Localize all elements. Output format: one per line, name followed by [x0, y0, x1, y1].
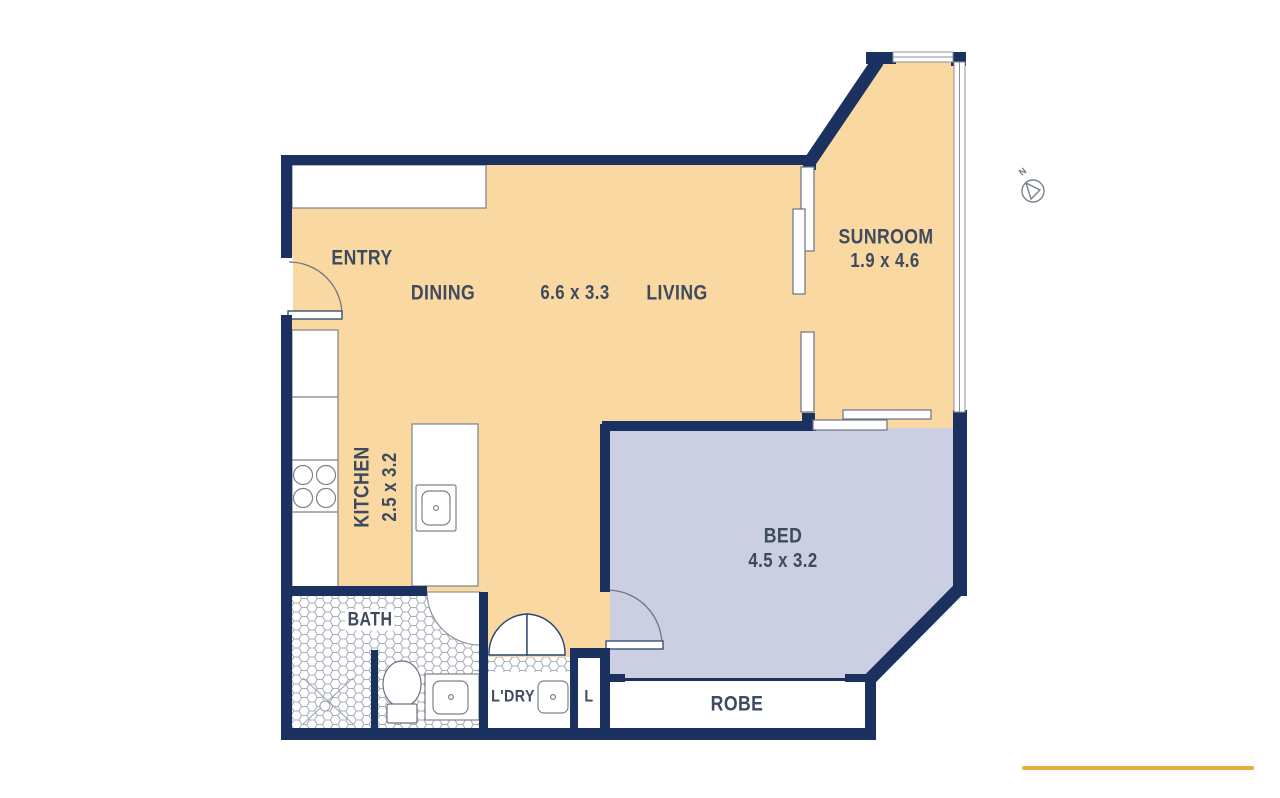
room-dims-sunroom: 1.9 x 4.6 — [850, 251, 919, 271]
room-dims-dining-living: 6.6 x 3.3 — [540, 283, 609, 303]
room-label-laundry: L'DRY — [491, 688, 535, 705]
floorplan-page: ENTRY DINING 6.6 x 3.3 LIVING SUNROOM 1.… — [0, 0, 1280, 798]
kitchen-bench — [292, 330, 338, 588]
room-label-kitchen: KITCHEN — [352, 446, 373, 527]
room-dims-kitchen: 2.5 x 3.2 — [380, 452, 400, 521]
compass-icon — [1022, 180, 1044, 202]
kitchen-sink-icon — [416, 485, 456, 531]
room-label-bed: BED — [764, 526, 803, 547]
room-label-entry: ENTRY — [331, 248, 392, 269]
room-label-robe: ROBE — [711, 694, 764, 715]
laundry-sink-icon — [538, 681, 568, 713]
room-label-bath: BATH — [345, 610, 395, 631]
floorplan-drawing — [0, 0, 1280, 798]
bath-vanity-icon — [425, 674, 479, 720]
room-dims-bed: 4.5 x 3.2 — [748, 551, 817, 571]
toilet-icon — [383, 661, 421, 723]
room-label-sunroom: SUNROOM — [838, 227, 933, 248]
room-label-living: LIVING — [646, 283, 707, 304]
room-label-dining: DINING — [411, 283, 475, 304]
accent-underline — [1022, 766, 1254, 770]
entry-cupboard — [292, 165, 486, 208]
room-label-linen: L — [584, 688, 593, 705]
